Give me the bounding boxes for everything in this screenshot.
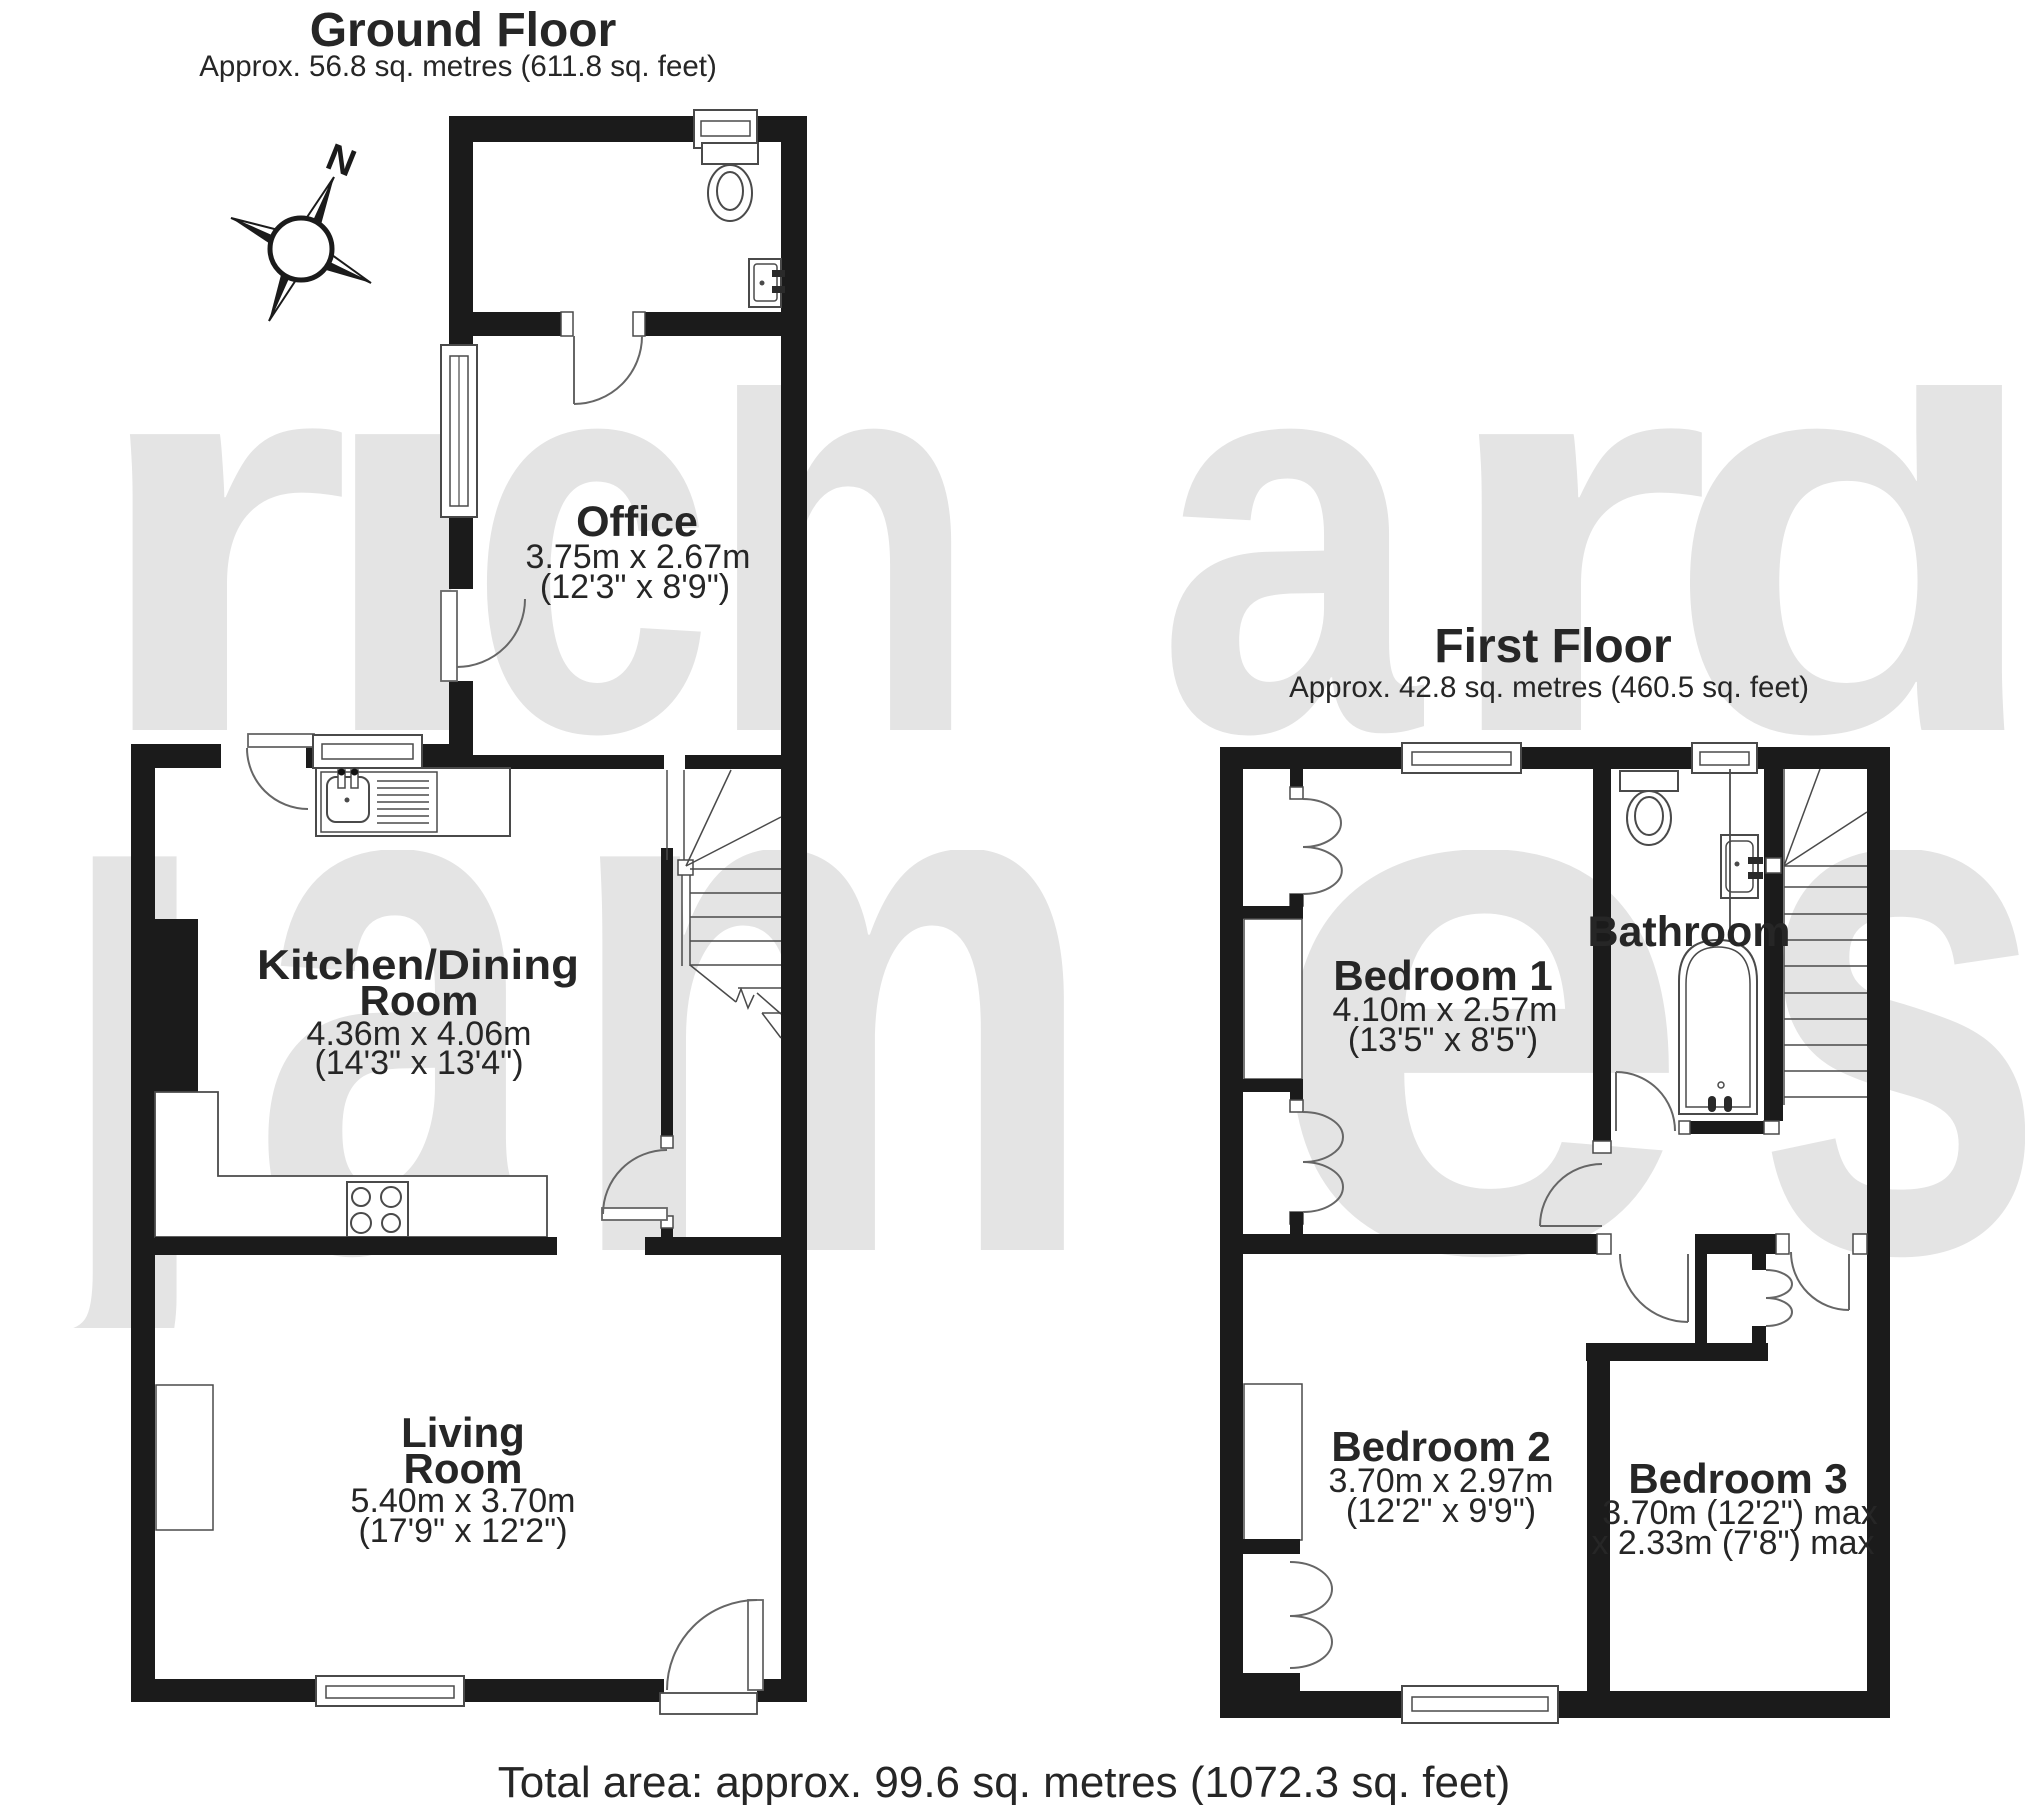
svg-text:(17'9" x 12'2"): (17'9" x 12'2") <box>358 1512 567 1550</box>
svg-text:(12'3" x 8'9"): (12'3" x 8'9") <box>540 568 730 606</box>
svg-text:Approx. 56.8 sq. metres (611.8: Approx. 56.8 sq. metres (611.8 sq. feet) <box>199 50 717 83</box>
svg-text:Approx. 42.8 sq. metres (460.5: Approx. 42.8 sq. metres (460.5 sq. feet) <box>1289 671 1809 704</box>
svg-text:Total area: approx. 99.6 sq. m: Total area: approx. 99.6 sq. metres (107… <box>498 1758 1511 1805</box>
svg-text:x 2.33m (7'8") max: x 2.33m (7'8") max <box>1591 1524 1874 1562</box>
svg-text:(12'2" x 9'9"): (12'2" x 9'9") <box>1346 1492 1536 1530</box>
svg-text:(14'3" x 13'4"): (14'3" x 13'4") <box>314 1044 523 1082</box>
svg-text:Bathroom: Bathroom <box>1587 908 1790 956</box>
svg-text:(13'5" x 8'5"): (13'5" x 8'5") <box>1348 1021 1538 1059</box>
svg-text:First Floor: First Floor <box>1434 620 1671 673</box>
